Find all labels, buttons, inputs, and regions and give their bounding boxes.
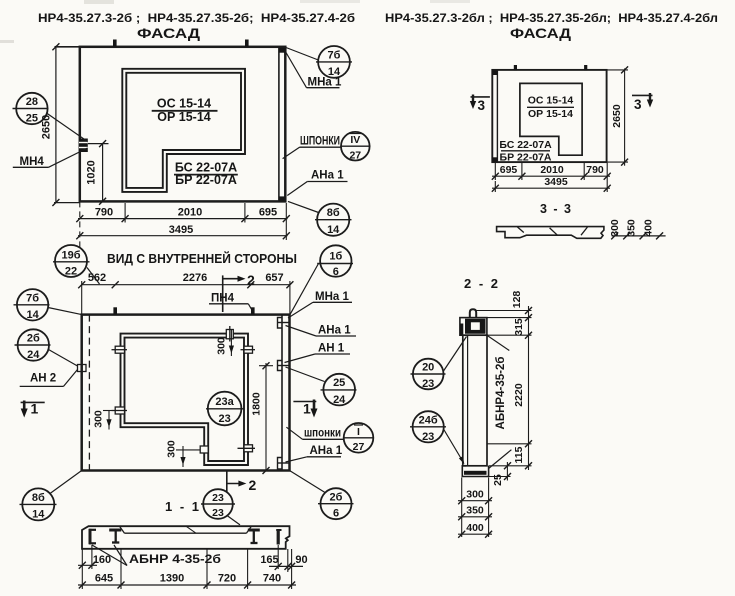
svg-text:IV: IV	[350, 134, 360, 146]
svg-text:8б: 8б	[32, 492, 45, 504]
svg-text:740: 740	[263, 573, 281, 585]
svg-text:НР4-35.27.3-2бл ; НР4-35.27.3: НР4-35.27.3-2бл ; НР4-35.27.35-2бл; НР4-…	[385, 11, 718, 25]
svg-text:562: 562	[88, 272, 106, 284]
svg-text:24: 24	[27, 349, 40, 361]
svg-text:28: 28	[26, 96, 38, 108]
svg-text:720: 720	[218, 573, 236, 585]
svg-text:657: 657	[265, 272, 283, 284]
svg-text:1: 1	[31, 401, 39, 417]
svg-text:3495: 3495	[169, 224, 193, 236]
svg-text:23: 23	[422, 431, 434, 443]
svg-text:АН 1: АН 1	[318, 343, 345, 355]
svg-text:24: 24	[333, 394, 346, 406]
svg-text:645: 645	[95, 573, 113, 585]
svg-text:300: 300	[609, 219, 621, 237]
svg-text:400: 400	[466, 522, 484, 534]
svg-text:АНа 1: АНа 1	[311, 170, 344, 182]
svg-text:115: 115	[513, 446, 525, 463]
svg-text:ОС 15-14: ОС 15-14	[528, 95, 574, 107]
svg-text:20: 20	[422, 362, 434, 374]
svg-text:14: 14	[26, 309, 39, 321]
svg-text:2: 2	[249, 477, 257, 493]
svg-text:1020: 1020	[86, 160, 98, 184]
svg-text:160: 160	[93, 554, 111, 566]
svg-text:350: 350	[626, 219, 638, 237]
svg-text:8б: 8б	[327, 207, 340, 219]
svg-text:ПН4: ПН4	[211, 293, 235, 305]
svg-text:2276: 2276	[183, 272, 207, 284]
svg-text:БС 22-07А: БС 22-07А	[499, 139, 552, 151]
svg-text:2220: 2220	[513, 383, 525, 407]
svg-text:ОС 15-14: ОС 15-14	[157, 97, 211, 111]
svg-text:300: 300	[93, 410, 105, 428]
svg-text:300: 300	[216, 337, 228, 355]
svg-text:АН 2: АН 2	[30, 373, 56, 385]
svg-text:300: 300	[466, 489, 484, 501]
svg-text:25: 25	[492, 474, 504, 486]
svg-text:19б: 19б	[61, 250, 80, 262]
svg-text:ОР 15-14: ОР 15-14	[157, 110, 211, 124]
svg-text:315: 315	[513, 318, 525, 336]
svg-text:МНа 1: МНа 1	[308, 77, 342, 89]
svg-text:2010: 2010	[540, 164, 564, 176]
svg-text:ОР 15-14: ОР 15-14	[528, 108, 573, 120]
svg-text:3 - 3: 3 - 3	[540, 202, 573, 216]
svg-text:БР 22-07А: БР 22-07А	[500, 151, 552, 163]
svg-text:МН4: МН4	[20, 156, 45, 168]
svg-text:2650: 2650	[41, 115, 53, 139]
svg-text:165: 165	[260, 554, 278, 566]
svg-text:22: 22	[65, 266, 77, 278]
svg-text:790: 790	[586, 164, 604, 176]
svg-text:27: 27	[353, 441, 365, 453]
svg-text:23: 23	[212, 492, 224, 504]
svg-text:14: 14	[327, 224, 340, 236]
svg-text:1 - 1: 1 - 1	[165, 499, 201, 514]
svg-text:шпонки: шпонки	[304, 428, 341, 440]
svg-text:90: 90	[295, 554, 307, 566]
svg-text:ФАСАД: ФАСАД	[137, 26, 200, 41]
svg-text:3: 3	[478, 98, 486, 113]
svg-text:25: 25	[333, 377, 345, 389]
svg-text:14: 14	[32, 509, 45, 521]
svg-text:300: 300	[166, 440, 178, 458]
svg-text:3495: 3495	[544, 176, 568, 188]
svg-text:2б: 2б	[330, 492, 343, 504]
svg-text:25: 25	[26, 113, 38, 125]
svg-text:1б: 1б	[329, 251, 342, 263]
svg-text:2650: 2650	[611, 104, 623, 128]
svg-text:23: 23	[422, 378, 434, 390]
svg-text:790: 790	[95, 207, 113, 219]
svg-text:6: 6	[333, 266, 339, 278]
svg-text:ШПОНКИ: ШПОНКИ	[300, 136, 340, 148]
svg-text:МНа 1: МНа 1	[315, 291, 349, 303]
svg-text:1800: 1800	[251, 392, 263, 416]
svg-text:ВИД С ВНУТРЕННЕЙ СТОРОНЫ: ВИД С ВНУТРЕННЕЙ СТОРОНЫ	[107, 251, 297, 266]
svg-text:695: 695	[500, 164, 518, 176]
svg-text:7б: 7б	[26, 293, 39, 305]
svg-text:АБНР4-35-2б: АБНР4-35-2б	[495, 357, 507, 430]
svg-text:24б: 24б	[419, 415, 438, 427]
svg-text:27: 27	[349, 150, 361, 162]
svg-text:2 - 2: 2 - 2	[464, 276, 500, 291]
svg-text:АНа 1: АНа 1	[318, 325, 351, 337]
svg-text:23а: 23а	[215, 396, 234, 408]
svg-text:6: 6	[333, 508, 339, 520]
svg-text:23: 23	[218, 413, 230, 425]
svg-text:23: 23	[212, 507, 224, 519]
svg-text:695: 695	[259, 207, 277, 219]
svg-text:I: I	[357, 426, 360, 438]
svg-text:400: 400	[643, 219, 655, 237]
svg-text:1390: 1390	[160, 573, 184, 585]
svg-text:350: 350	[466, 505, 484, 517]
svg-text:128: 128	[511, 291, 523, 309]
svg-text:АНа 1: АНа 1	[310, 445, 343, 457]
svg-text:3: 3	[634, 97, 642, 112]
svg-text:2: 2	[247, 272, 255, 288]
svg-text:1: 1	[303, 401, 311, 417]
svg-text:7б: 7б	[328, 50, 341, 62]
svg-text:ФАСАД: ФАСАД	[510, 26, 571, 41]
svg-text:НР4-35.27.3-2б ; НР4-35.27.35: НР4-35.27.3-2б ; НР4-35.27.35-2б; НР4-35…	[38, 11, 356, 25]
svg-text:2010: 2010	[178, 207, 202, 219]
svg-text:2б: 2б	[27, 333, 40, 345]
